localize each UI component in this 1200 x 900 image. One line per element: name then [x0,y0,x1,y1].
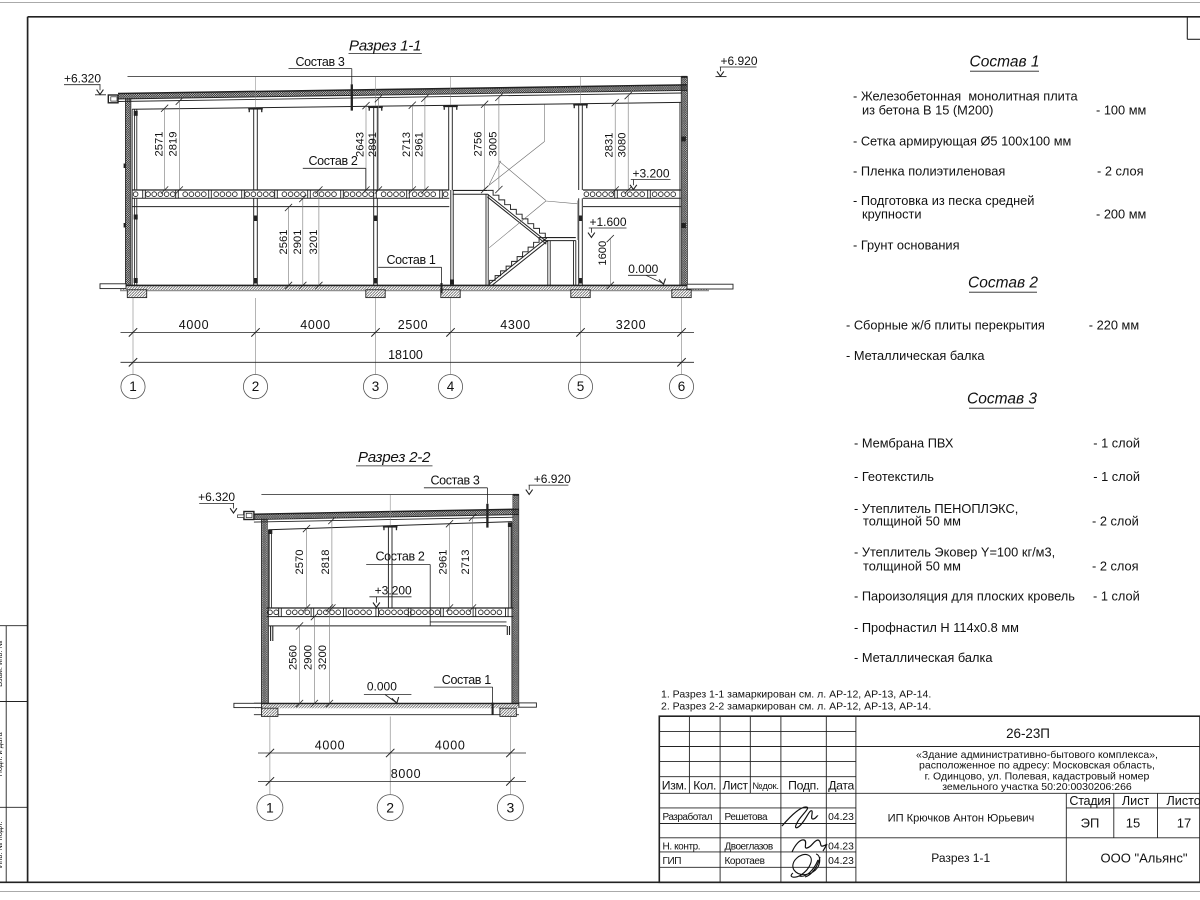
svg-text:1600: 1600 [597,241,609,266]
svg-text:3: 3 [507,799,515,815]
svg-text:- Сетка армирующая Ø5 100х100: - Сетка армирующая Ø5 100х100 мм [853,134,1071,149]
svg-text:толщиной 50 мм: толщиной 50 мм [863,514,961,529]
svg-text:№док.: №док. [752,781,778,792]
svg-text:ЭП: ЭП [1081,816,1100,831]
svg-text:2713: 2713 [401,132,413,157]
svg-text:5: 5 [577,379,585,394]
svg-text:17: 17 [1177,816,1191,831]
svg-text:0.000: 0.000 [367,679,397,693]
svg-text:Состав 3: Состав 3 [430,473,479,487]
svg-text:+6.920: +6.920 [534,472,571,486]
svg-text:- 100 мм: - 100 мм [1096,103,1146,118]
svg-text:04.23: 04.23 [828,856,854,867]
svg-text:- 2 слоя: - 2 слоя [1097,163,1144,178]
svg-text:26-23П: 26-23П [1006,726,1050,741]
svg-text:04.23: 04.23 [828,812,854,823]
svg-text:2560: 2560 [288,645,300,670]
svg-text:3005: 3005 [487,132,499,157]
svg-text:3200: 3200 [616,318,647,332]
svg-text:18100: 18100 [388,348,423,362]
svg-text:ООО "Альянс": ООО "Альянс" [1101,850,1188,865]
svg-text:2961: 2961 [414,132,426,157]
svg-text:Решетова: Решетова [725,812,768,823]
svg-text:Разрез 1-1: Разрез 1-1 [931,851,990,865]
svg-text:+3.200: +3.200 [375,584,412,598]
svg-text:- Металлическая балка: - Металлическая балка [854,650,993,665]
svg-text:- 220 мм: - 220 мм [1089,318,1139,333]
svg-text:8000: 8000 [391,767,422,781]
svg-text:Разработал: Разработал [663,811,713,823]
svg-text:Состав 1: Состав 1 [970,54,1040,71]
svg-text:Состав 2: Состав 2 [308,154,357,168]
svg-text:крупности: крупности [862,207,922,222]
svg-text:6: 6 [678,379,686,394]
svg-text:Состав 1: Состав 1 [386,253,435,267]
svg-text:2891: 2891 [367,132,379,157]
svg-text:1: 1 [129,379,137,394]
svg-text:ГИП: ГИП [663,856,682,867]
svg-text:2900: 2900 [302,645,314,670]
svg-text:- Сборные ж/б плиты перекрытия: - Сборные ж/б плиты перекрытия [846,318,1045,333]
svg-text:4000: 4000 [315,739,346,753]
svg-text:1: 1 [266,799,274,815]
svg-text:4: 4 [447,379,455,394]
svg-text:2819: 2819 [167,132,179,157]
svg-text:Лист: Лист [723,779,749,793]
svg-text:толщиной 50 мм: толщиной 50 мм [863,559,961,574]
svg-text:- 1 слой: - 1 слой [1093,436,1140,451]
svg-text:1. Разрез 1-1 замаркирован см.: 1. Разрез 1-1 замаркирован см. л. АР-12,… [661,688,931,700]
svg-text:Изм.: Изм. [662,779,687,793]
svg-text:- 1 слой: - 1 слой [1093,589,1140,604]
svg-text:- Пленка полиэтиленовая: - Пленка полиэтиленовая [853,163,1005,178]
svg-text:3200: 3200 [317,645,329,670]
svg-text:2961: 2961 [438,550,450,575]
svg-text:Подп. и дата: Подп. и дата [0,731,4,776]
svg-text:Двоеглазов: Двоеглазов [725,842,773,853]
svg-text:3: 3 [372,379,380,394]
svg-text:Подп.: Подп. [788,779,819,793]
svg-text:- Профнастил Н 114х0.8 мм: - Профнастил Н 114х0.8 мм [854,620,1019,635]
svg-text:4300: 4300 [500,318,531,332]
svg-text:- Металлическая балка: - Металлическая балка [846,348,985,363]
svg-text:3080: 3080 [617,133,629,158]
svg-text:4000: 4000 [179,318,210,332]
svg-text:2571: 2571 [153,132,165,157]
svg-text:Коротаев: Коротаев [725,856,765,867]
svg-text:Н. контр.: Н. контр. [663,842,701,853]
svg-text:+1.600: +1.600 [589,215,626,229]
svg-text:- 200 мм: - 200 мм [1096,207,1146,222]
svg-text:2901: 2901 [292,230,304,255]
svg-text:Разрез 2-2: Разрез 2-2 [358,449,431,466]
svg-text:Состав 3: Состав 3 [967,391,1037,408]
svg-text:4000: 4000 [435,739,466,753]
svg-text:Стадия: Стадия [1069,794,1110,808]
svg-text:04.23: 04.23 [828,842,854,853]
svg-text:+6.320: +6.320 [198,490,235,504]
svg-text:2500: 2500 [398,318,429,332]
svg-text:3201: 3201 [308,230,320,255]
svg-text:- Грунт основания: - Грунт основания [853,237,960,252]
svg-text:- Геотекстиль: - Геотекстиль [854,469,934,484]
svg-text:Разрез 1-1: Разрез 1-1 [349,38,421,55]
svg-text:4000: 4000 [300,318,331,332]
svg-text:2: 2 [386,799,394,815]
svg-text:ИП Крючков Антон Юрьевич: ИП Крючков Антон Юрьевич [888,812,1035,824]
svg-text:земельного участка 50:20:00302: земельного участка 50:20:0030206:266 [942,781,1132,793]
svg-text:2818: 2818 [320,550,332,575]
svg-text:+3.200: +3.200 [632,166,669,180]
svg-text:2: 2 [252,379,260,394]
svg-text:2570: 2570 [294,550,306,575]
svg-text:+6.320: +6.320 [64,72,101,86]
svg-text:- 1 слой: - 1 слой [1093,469,1140,484]
svg-text:из бетона В 15 (М200): из бетона В 15 (М200) [862,103,993,118]
svg-text:2. Разрез 2-2 замаркирован см.: 2. Разрез 2-2 замаркирован см. л. АР-12,… [661,701,931,713]
svg-text:Лист: Лист [1122,794,1150,808]
svg-text:+6.920: +6.920 [720,54,757,68]
svg-text:Инв. № подл.: Инв. № подл. [0,821,4,868]
svg-text:Дата: Дата [828,779,854,793]
svg-text:2713: 2713 [460,550,472,575]
svg-text:- Железобетонная монолитная п: - Железобетонная монолитная плита [853,88,1079,103]
svg-text:Состав 3: Состав 3 [295,55,344,69]
svg-text:Состав 2: Состав 2 [375,550,424,564]
svg-text:Состав 1: Состав 1 [442,673,491,687]
svg-text:0.000: 0.000 [628,262,658,276]
svg-text:- Мембрана ПВХ: - Мембрана ПВХ [854,436,954,451]
svg-text:- Утеплитель Эковер Y=100 кг/м: - Утеплитель Эковер Y=100 кг/м3, [854,545,1055,560]
svg-text:Листов: Листов [1167,794,1200,808]
svg-text:2756: 2756 [473,132,485,157]
svg-text:- 2 слоя: - 2 слоя [1092,559,1139,574]
svg-text:Состав 2: Состав 2 [968,275,1038,292]
svg-text:- 2 слой: - 2 слой [1092,514,1139,529]
svg-text:Взам. инв. №: Взам. инв. № [0,640,4,686]
svg-text:Кол.: Кол. [693,779,716,793]
svg-text:15: 15 [1126,816,1140,831]
svg-text:- Пароизоляция для плоских кро: - Пароизоляция для плоских кровель [854,589,1075,604]
svg-text:2831: 2831 [604,133,616,158]
